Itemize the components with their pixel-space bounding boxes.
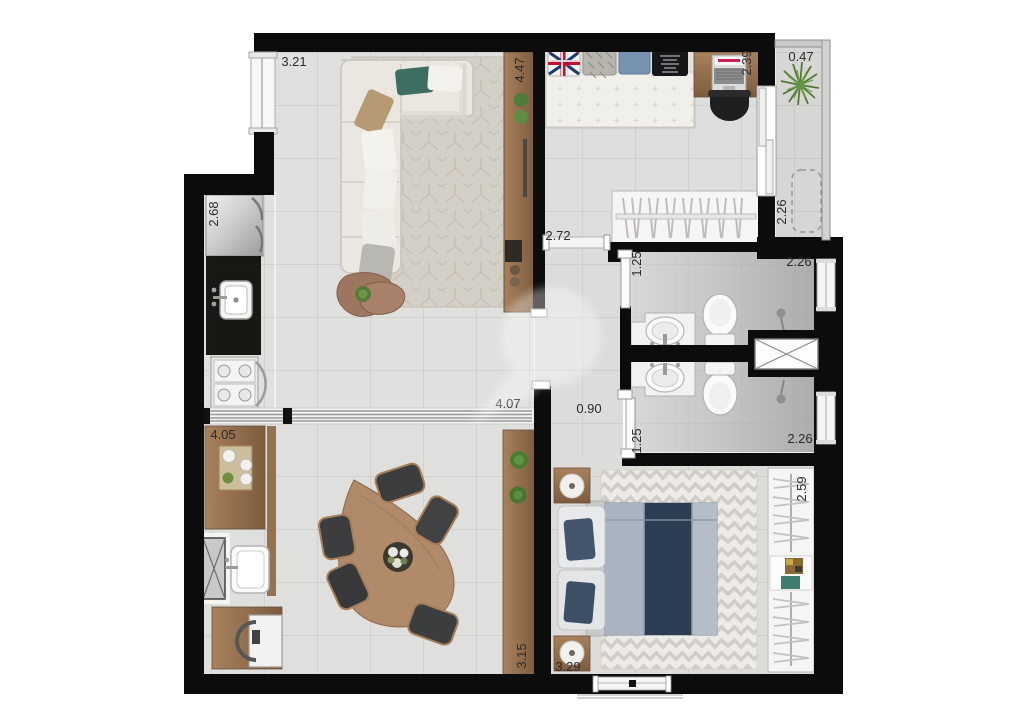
svg-text:3.21: 3.21 <box>281 54 306 69</box>
svg-text:0.47: 0.47 <box>788 49 813 64</box>
svg-text:4.47: 4.47 <box>512 57 527 82</box>
svg-text:3.15: 3.15 <box>514 643 529 668</box>
svg-text:2.39: 2.39 <box>739 50 754 75</box>
svg-text:2.26: 2.26 <box>787 431 812 446</box>
svg-text:1.25: 1.25 <box>629 251 644 276</box>
svg-text:4.05: 4.05 <box>210 427 235 442</box>
svg-text:3.29: 3.29 <box>555 659 580 674</box>
svg-text:1.25: 1.25 <box>629 428 644 453</box>
svg-text:2.26: 2.26 <box>786 254 811 269</box>
svg-text:2.26: 2.26 <box>774 199 789 224</box>
svg-text:2.59: 2.59 <box>794 476 809 501</box>
svg-text:2.72: 2.72 <box>545 228 570 243</box>
svg-text:2.68: 2.68 <box>206 201 221 226</box>
svg-text:0.90: 0.90 <box>576 401 601 416</box>
